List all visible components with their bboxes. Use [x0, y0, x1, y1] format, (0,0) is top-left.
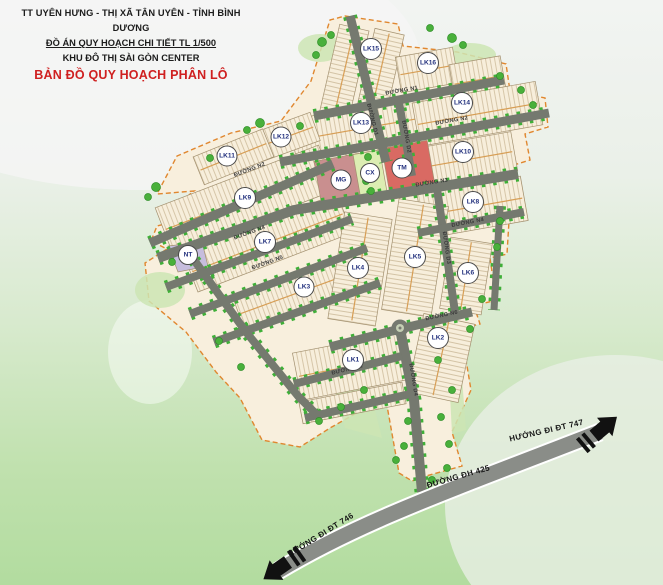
svg-text:LK1: LK1 — [347, 357, 360, 364]
map-canvas: ĐƯỜNG N1 ĐƯỜNG N2 ĐƯỜNG N2 ĐƯỜNG N3 ĐƯỜN… — [0, 0, 663, 585]
svg-text:LK16: LK16 — [420, 60, 436, 67]
badge-lk11: LK11 — [217, 146, 237, 166]
svg-text:LK12: LK12 — [273, 134, 289, 141]
svg-text:LK13: LK13 — [353, 120, 369, 127]
badge-mg: MG — [331, 170, 351, 190]
svg-text:TM: TM — [397, 165, 407, 172]
svg-text:MG: MG — [336, 177, 347, 184]
svg-text:LK4: LK4 — [352, 265, 365, 272]
badge-lk15: LK15 — [361, 39, 382, 60]
svg-text:CX: CX — [365, 170, 375, 177]
badge-lk16: LK16 — [418, 53, 439, 74]
badge-nt: NT — [179, 246, 198, 265]
roundabout — [392, 320, 409, 337]
badge-lk6: LK6 — [458, 263, 479, 284]
badge-lk3: LK3 — [294, 277, 314, 297]
svg-text:LK9: LK9 — [239, 195, 252, 202]
badge-lk2: LK2 — [428, 328, 449, 349]
badge-tm: TM — [392, 158, 412, 178]
badge-lk10: LK10 — [453, 142, 474, 163]
badge-lk12: LK12 — [271, 127, 291, 147]
badge-lk8: LK8 — [463, 192, 484, 213]
badge-lk1: LK1 — [343, 350, 364, 371]
badge-lk7: LK7 — [255, 232, 276, 253]
planning-map-page: TT UYÊN HƯNG - THỊ XÃ TÂN UYÊN - TỈNH BÌ… — [0, 0, 663, 585]
svg-text:LK14: LK14 — [454, 100, 470, 107]
svg-text:LK7: LK7 — [259, 239, 272, 246]
svg-text:NT: NT — [184, 252, 193, 259]
svg-text:LK11: LK11 — [219, 153, 235, 160]
badge-lk5: LK5 — [405, 247, 426, 268]
badge-lk14: LK14 — [452, 93, 473, 114]
badge-lk9: LK9 — [235, 188, 256, 209]
svg-text:LK6: LK6 — [462, 270, 475, 277]
badge-lk4: LK4 — [348, 258, 369, 279]
badge-lk13: LK13 — [351, 113, 372, 134]
badge-cx: CX — [361, 164, 380, 183]
svg-text:LK5: LK5 — [409, 254, 422, 261]
map-title-block: TT UYÊN HƯNG - THỊ XÃ TÂN UYÊN - TỈNH BÌ… — [4, 6, 258, 85]
svg-text:LK2: LK2 — [432, 335, 445, 342]
title-area-line: KHU ĐÔ THỊ SÀI GÒN CENTER — [4, 51, 258, 66]
svg-text:LK8: LK8 — [467, 199, 480, 206]
svg-text:LK15: LK15 — [363, 46, 379, 53]
title-map-name: BẢN ĐỒ QUY HOẠCH PHÂN LÔ — [4, 66, 258, 85]
svg-text:LK10: LK10 — [455, 149, 471, 156]
title-project-line: ĐỒ ÁN QUY HOẠCH CHI TIẾT TL 1/500 — [4, 36, 258, 51]
title-province-line: TT UYÊN HƯNG - THỊ XÃ TÂN UYÊN - TỈNH BÌ… — [4, 6, 258, 36]
svg-text:LK3: LK3 — [298, 284, 311, 291]
